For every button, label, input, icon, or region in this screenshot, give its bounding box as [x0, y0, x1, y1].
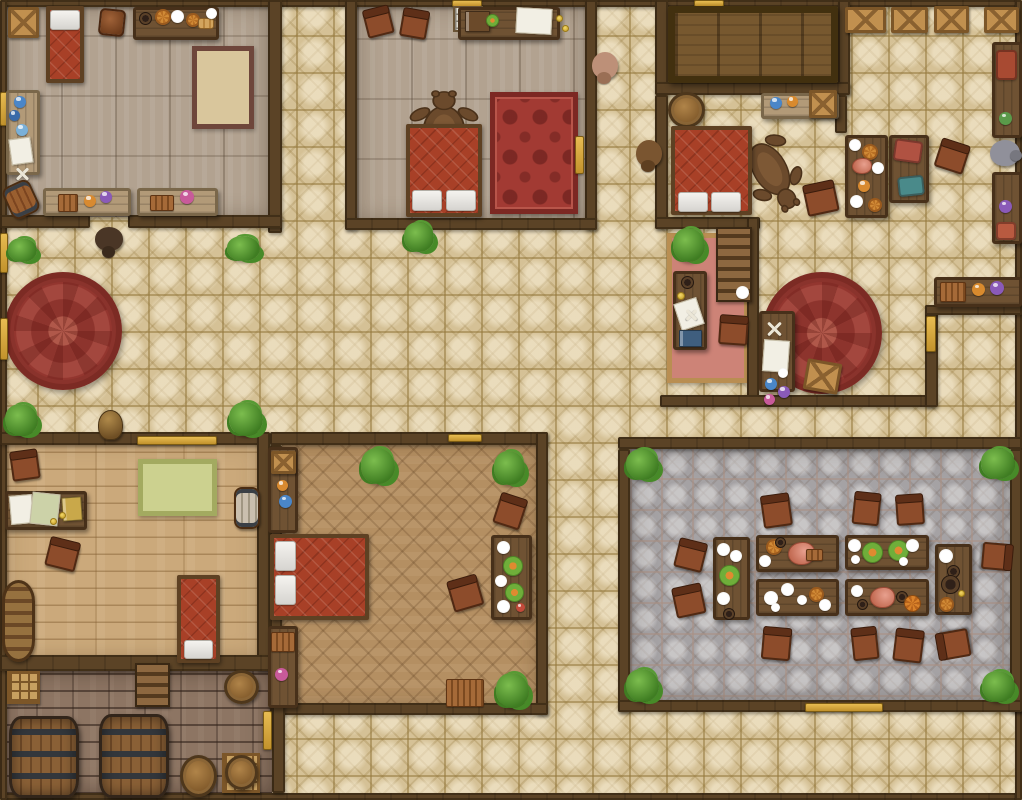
churn-barrel: [234, 487, 260, 529]
orb: [279, 495, 292, 508]
orb: [516, 603, 525, 612]
tan-rug: [192, 46, 254, 129]
tavern-battlemap: [0, 0, 1022, 800]
crate: [8, 7, 39, 38]
wall: [345, 0, 357, 230]
salad: [719, 565, 740, 586]
pumpkin: [904, 595, 921, 612]
cross: [684, 308, 698, 322]
cushion: [893, 138, 924, 164]
pillow: [275, 575, 296, 605]
pillow: [446, 190, 476, 211]
wall: [345, 218, 597, 230]
chair: [936, 628, 971, 661]
orb: [999, 200, 1012, 213]
chair: [981, 542, 1012, 571]
plate: [851, 555, 860, 564]
wall: [1010, 449, 1022, 712]
crate: [891, 7, 928, 33]
crategrid: [7, 671, 40, 704]
green-rug: [138, 459, 217, 516]
barrel: [225, 755, 258, 790]
chair: [399, 9, 430, 40]
slats: [271, 632, 295, 652]
cellar-hatch-ladder: [135, 663, 170, 707]
stage-table: [668, 6, 838, 83]
slats: [58, 194, 78, 212]
orb: [180, 190, 194, 204]
door-study: [137, 436, 217, 445]
pillow: [711, 192, 741, 212]
orb: [16, 124, 28, 136]
wall: [618, 437, 1022, 449]
ham: [852, 158, 872, 174]
plate: [781, 583, 794, 596]
head: [1010, 150, 1022, 161]
bread: [198, 18, 214, 29]
coin: [562, 25, 569, 32]
plate: [497, 600, 510, 613]
orb: [14, 96, 26, 108]
plate: [759, 555, 771, 567]
giant-keg: [9, 716, 79, 798]
coin: [677, 292, 685, 300]
cushion: [996, 50, 1017, 80]
plate: [939, 549, 953, 563]
pie: [155, 9, 171, 25]
mug: [857, 599, 868, 610]
bush: [982, 671, 1015, 702]
open-book: [515, 7, 552, 35]
wall: [655, 0, 668, 95]
cushion: [897, 175, 925, 198]
chair: [671, 584, 706, 619]
plate: [495, 575, 507, 587]
plate: [906, 539, 919, 552]
chair: [761, 628, 793, 661]
plate: [851, 585, 863, 597]
orb: [770, 97, 782, 109]
head: [641, 160, 655, 172]
coin: [556, 15, 563, 22]
bush: [981, 448, 1015, 479]
door-bedroom-2: [448, 434, 482, 442]
head: [597, 72, 611, 84]
giant-keg: [99, 714, 169, 798]
orb: [277, 480, 288, 491]
orb: [9, 110, 20, 121]
chair: [9, 450, 41, 482]
door-bedroom-1-east: [575, 136, 584, 174]
paper: [8, 137, 33, 166]
pillow: [50, 10, 80, 30]
stair-nook: [2, 580, 35, 662]
mug: [941, 575, 960, 594]
orb: [972, 283, 985, 296]
orb: [990, 281, 1004, 295]
chair: [718, 316, 749, 346]
bush: [626, 449, 659, 480]
pie: [939, 597, 954, 612]
pillow: [678, 192, 708, 212]
bush: [494, 451, 525, 485]
plate: [497, 541, 510, 554]
bush: [404, 222, 434, 252]
coin: [958, 590, 965, 597]
cushion: [996, 222, 1016, 240]
chair: [850, 628, 879, 662]
orb: [275, 668, 288, 681]
orb: [100, 191, 112, 203]
round-carpet-west: [4, 272, 122, 390]
mug: [723, 608, 735, 620]
bush: [227, 236, 260, 261]
wall: [128, 215, 282, 228]
plate: [819, 599, 831, 611]
orb: [778, 386, 790, 398]
paper: [762, 339, 790, 373]
chair: [892, 629, 925, 663]
salad: [503, 556, 523, 576]
book: [679, 330, 702, 347]
slats: [150, 195, 174, 211]
crate: [809, 90, 837, 118]
pillow: [412, 190, 442, 211]
pillow: [184, 640, 213, 659]
chair: [851, 493, 881, 527]
orb: [764, 394, 775, 405]
barrel: [180, 755, 217, 797]
salad: [505, 583, 524, 602]
slats: [940, 282, 966, 302]
head: [102, 246, 115, 258]
plate: [797, 595, 807, 605]
plate: [850, 195, 863, 208]
bird-statue: [98, 410, 123, 440]
crate: [845, 7, 886, 33]
slats: [806, 549, 823, 561]
plate: [872, 162, 884, 174]
wall: [270, 432, 548, 445]
stool: [98, 8, 127, 38]
wall: [536, 432, 548, 715]
bush: [626, 669, 659, 702]
bush: [229, 402, 263, 436]
coin: [50, 518, 57, 525]
plate: [730, 550, 742, 562]
door-hall-west-2: [0, 318, 8, 360]
plate: [717, 543, 730, 556]
door-hall-west-1: [0, 233, 8, 273]
salad: [862, 542, 883, 563]
bush: [496, 673, 529, 708]
door-dining-hall: [805, 703, 883, 712]
bush: [361, 448, 395, 484]
salad: [486, 14, 499, 27]
plate: [736, 286, 749, 299]
pie: [868, 198, 882, 212]
wall: [585, 0, 597, 230]
chair: [760, 494, 793, 529]
ornate-red-carpet: [490, 92, 578, 214]
chair: [895, 495, 925, 526]
orb: [84, 195, 96, 207]
map-border-top: [0, 0, 1022, 7]
cross: [765, 320, 783, 338]
bush: [5, 404, 38, 436]
barrel: [224, 670, 259, 704]
plate: [848, 539, 861, 552]
crate: [271, 451, 296, 474]
door-bar: [926, 316, 936, 352]
plate: [206, 8, 217, 19]
plate: [771, 603, 780, 612]
coin: [59, 512, 66, 519]
barrel: [668, 92, 705, 128]
wall: [0, 432, 270, 445]
mug: [681, 276, 694, 289]
orb: [765, 378, 777, 390]
pillow: [275, 541, 296, 571]
bush: [8, 238, 37, 262]
wall: [660, 395, 935, 407]
bush: [673, 228, 705, 262]
crate: [934, 6, 969, 33]
plate: [849, 139, 861, 151]
plate: [717, 592, 730, 605]
door-cellar: [263, 711, 272, 750]
plate: [171, 10, 184, 23]
bench-crate: [446, 679, 484, 707]
study-floor: [7, 443, 258, 657]
orb: [858, 180, 870, 192]
crate: [803, 358, 843, 395]
mug: [775, 537, 786, 548]
orb: [787, 96, 798, 107]
wall: [618, 449, 630, 712]
crate: [984, 7, 1019, 33]
plate: [778, 368, 788, 378]
ham: [870, 587, 895, 608]
plate: [899, 557, 908, 566]
mug: [139, 12, 152, 25]
wall: [268, 0, 282, 233]
orb: [999, 112, 1012, 125]
